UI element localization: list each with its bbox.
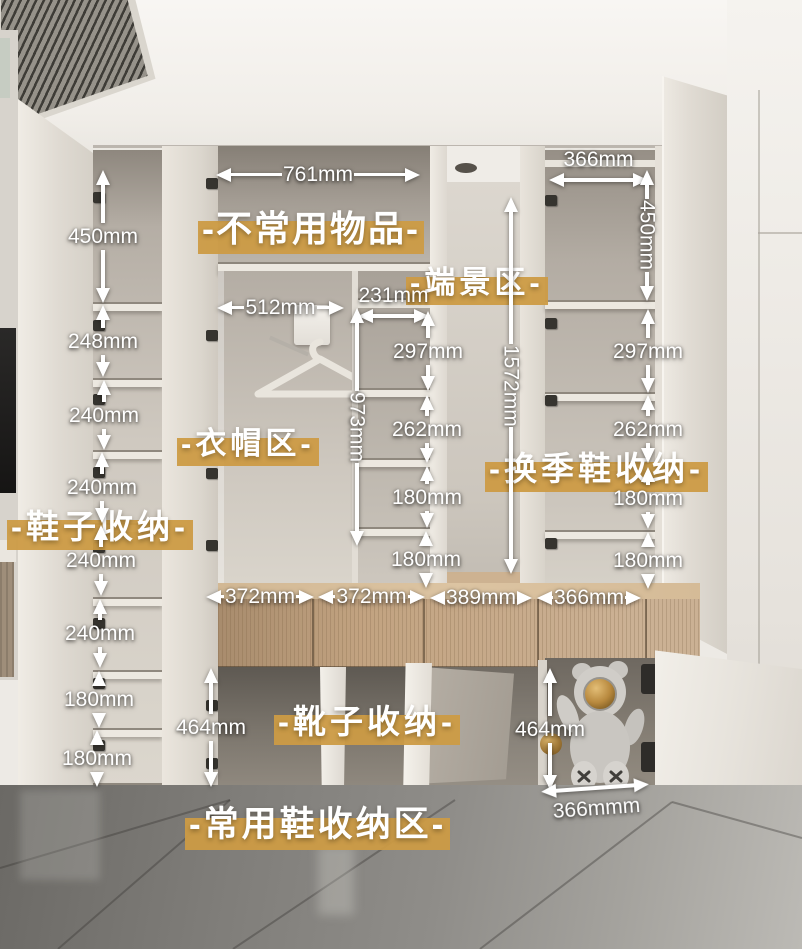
- floor-reflection: [318, 845, 354, 915]
- hinge-icon: [545, 395, 557, 406]
- hinge-icon: [93, 394, 105, 405]
- left-room-strip: [0, 30, 18, 680]
- window-glass: [0, 38, 10, 98]
- column-top-board: [358, 298, 436, 308]
- drawer-seam: [312, 599, 314, 666]
- shelf: [545, 392, 662, 401]
- compartment-divider: [538, 660, 547, 794]
- hinge-icon: [545, 195, 557, 206]
- middle-unit-right-panel: [430, 146, 447, 601]
- shelf: [358, 527, 436, 536]
- shelf: [358, 388, 436, 397]
- hinge-icon: [206, 700, 218, 711]
- right-shoe-shelf-unit: [545, 150, 662, 590]
- hinge-icon: [93, 618, 105, 629]
- hanging-area: [218, 271, 352, 601]
- shelf: [93, 728, 162, 737]
- hinge-icon: [93, 467, 105, 478]
- hinge-icon: [206, 758, 218, 769]
- shelf: [545, 530, 662, 539]
- shelf: [93, 597, 162, 606]
- left-shoe-shelf-unit: [93, 150, 162, 795]
- shelf: [545, 462, 662, 471]
- hinge-icon: [93, 192, 105, 203]
- shelf: [93, 450, 162, 459]
- countertop: [0, 540, 16, 562]
- left-unit-door-panel: [162, 146, 220, 812]
- shelf: [93, 523, 162, 532]
- top-compartment: [218, 146, 430, 270]
- drawer-seam: [423, 599, 425, 666]
- hinge-icon: [545, 538, 557, 549]
- hinge-icon: [206, 330, 218, 341]
- shelf: [545, 300, 662, 309]
- gold-ball-ornament: [540, 733, 562, 755]
- wall-tv: [0, 328, 16, 493]
- hinge-icon: [206, 178, 218, 189]
- hinge-icon: [206, 540, 218, 551]
- floor-grout-lines: [0, 785, 802, 949]
- hinge-icon: [545, 468, 557, 479]
- hinge-icon: [545, 318, 557, 329]
- inner-wall-highlight: [218, 271, 224, 601]
- hinge-icon: [93, 740, 105, 751]
- astronaut-bear-figurine: [556, 652, 648, 792]
- downlight-icon: [455, 163, 477, 173]
- narrow-shelf-column: [352, 271, 436, 601]
- hinge-icon: [206, 468, 218, 479]
- right-open-door: [662, 70, 729, 655]
- hinge-icon: [93, 542, 105, 553]
- annotated-wardrobe-photo: -不常用物品--端景区--衣帽区--鞋子收纳--换季鞋收纳--靴子收纳--常用鞋…: [0, 0, 802, 949]
- wood-cabinet: [0, 562, 14, 677]
- hinge-icon: [93, 320, 105, 331]
- drawer-seam: [537, 599, 539, 666]
- shelf: [93, 302, 162, 311]
- hinge-icon: [93, 678, 105, 689]
- boot-compartment: [218, 667, 414, 797]
- unit-top-board: [545, 160, 662, 167]
- shelf: [358, 458, 436, 467]
- display-niche-wall: [447, 182, 520, 577]
- shelf: [93, 378, 162, 387]
- right-unit-left-panel: [520, 146, 545, 601]
- floor-reflection: [20, 790, 100, 880]
- soffit-line: [758, 232, 802, 234]
